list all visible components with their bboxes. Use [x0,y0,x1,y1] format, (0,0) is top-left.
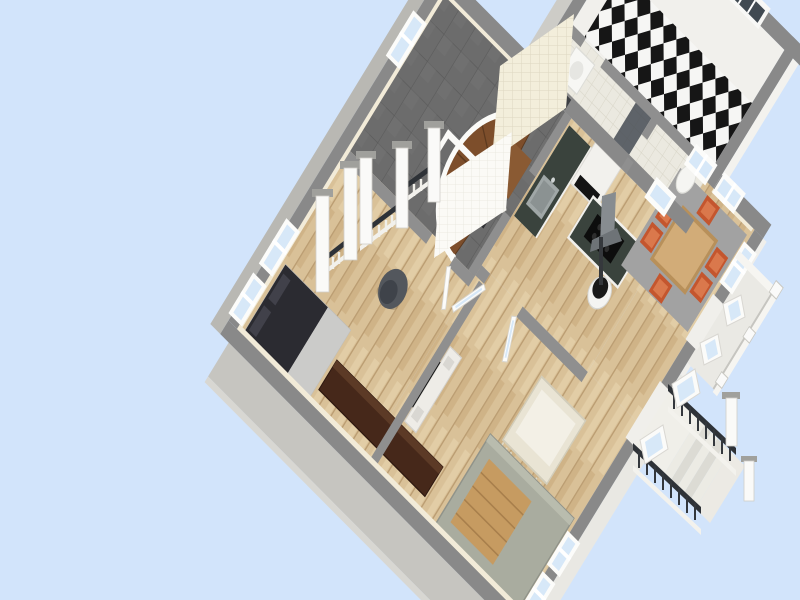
entrance-stairs [633,369,757,535]
dining-east-window [719,241,757,295]
railing-segment [360,205,396,251]
stair-post [722,392,740,446]
bedroom-door-leaf [442,267,451,310]
stair-lower-landing [696,452,746,524]
dining-north-window [712,172,746,214]
french-door-leaf [502,316,516,362]
french-door-leaf [452,284,486,312]
veranda-post [424,121,444,202]
dining-floor [588,180,755,422]
balcony-door-leaves [700,295,745,365]
dining-table [650,205,718,295]
entrance-door-leaves [640,369,700,464]
cooktop [584,214,625,264]
exterior-wall-faces [186,0,800,600]
railing-segment [402,167,428,205]
toilet [671,151,707,199]
stove-pipe [599,237,603,285]
entrance-door-threshold [626,381,672,449]
shower-glass-panel [611,98,654,159]
bed [243,265,351,401]
veranda-post [356,151,376,244]
side-balcony-railing [676,246,783,396]
sunken-lounge [434,434,574,600]
wood-stove [583,271,617,315]
doors [427,115,725,484]
stairwell-guard-railing [427,129,484,200]
veranda-post [392,141,412,228]
curved-staircase [412,80,550,273]
sideboard-dark [319,360,443,496]
shower-room-floor [536,26,655,168]
ball-chair [372,261,414,316]
stair-landing [635,391,698,476]
balcony-door-threshold [686,294,725,351]
tall-oven-cabinet [571,142,621,208]
dining-rug [621,168,747,332]
interior-walls [237,0,713,564]
dining-north-window [684,144,718,186]
hall-door-leaf [495,179,506,212]
kitchen-floor [482,118,678,372]
bedroom-window [228,272,266,326]
extractor-hood [590,192,622,252]
stair-balustrade [414,83,536,257]
kitchen-sink [526,175,560,220]
tiled-wall-face [492,14,574,160]
sofa [498,377,585,492]
house-plan [186,0,800,600]
stair-post [741,456,757,501]
hall-window [386,10,427,69]
veranda-post [340,161,361,260]
stair-object [472,203,492,229]
kitchen-island [567,195,644,289]
stair-railing-lower [633,443,701,535]
floor-plan-viewport[interactable] [0,0,800,600]
tv-screen [409,358,441,407]
bathroom-floor [570,0,784,169]
windows [228,0,800,600]
pit-wood-deck [450,459,531,565]
side-balcony-deck [679,258,777,393]
tv-bench [400,342,461,432]
railing-segment [317,240,345,281]
sky-background [0,0,800,600]
veranda-post [312,189,333,292]
wc-floor [621,112,712,225]
dining-chairs [625,171,744,328]
bathroom-north-window [716,0,771,29]
hallway-floor [347,0,571,276]
tall-elements [312,14,757,535]
wall-tops [220,0,800,600]
washbasin [558,47,594,95]
white-tiled-wall-face [434,132,512,258]
living-east-window [522,571,555,600]
dark-doorway [545,80,571,110]
kitchen-north-window [644,177,676,217]
bathroom-checker-tiles [585,0,752,166]
bedroom-window [259,218,300,277]
wall-face-edges [237,0,755,600]
floor-plan-render [0,0,800,600]
living-east-window [547,531,580,578]
stair-railing-upper [668,384,736,476]
kitchen-counter [514,125,592,238]
floors [237,0,800,600]
veranda-posts [312,121,444,292]
living-room-floor [364,265,637,600]
furniture-layer [243,0,800,600]
bedroom-floor [237,148,475,457]
